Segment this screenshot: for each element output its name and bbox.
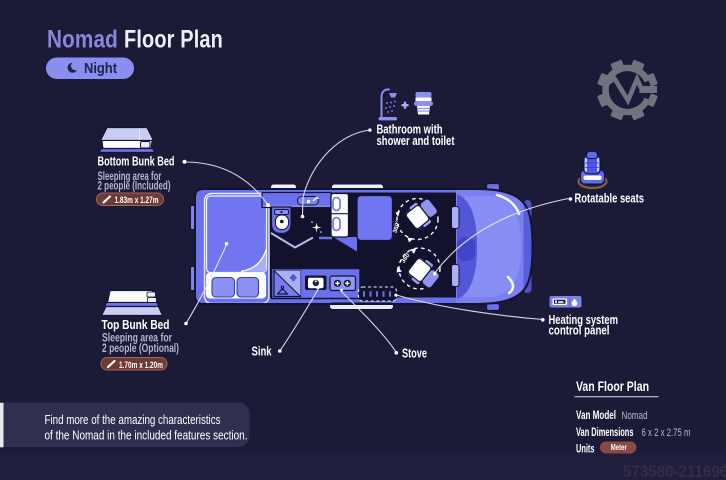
svg-text:shower and toilet: shower and toilet xyxy=(377,133,455,148)
svg-text:Meter: Meter xyxy=(611,443,627,452)
svg-text:Units: Units xyxy=(576,442,595,456)
svg-text:Rotatable seats: Rotatable seats xyxy=(575,191,645,206)
svg-text:Bottom Bunk Bed: Bottom Bunk Bed xyxy=(98,154,175,169)
svg-text:2 people (Optional): 2 people (Optional) xyxy=(102,343,179,355)
svg-text:573580-21169610: 573580-21169610 xyxy=(623,463,726,480)
svg-text:Stove: Stove xyxy=(402,346,427,361)
svg-text:1.70m x 1.20m: 1.70m x 1.20m xyxy=(119,360,163,370)
svg-text:Van Model: Van Model xyxy=(576,408,616,422)
svg-text:Nomad: Nomad xyxy=(47,26,118,54)
svg-text:2 people (Included): 2 people (Included) xyxy=(98,181,171,193)
svg-text:Top Bunk Bed: Top Bunk Bed xyxy=(102,317,170,332)
svg-text:Floor Plan: Floor Plan xyxy=(124,26,223,54)
svg-text:Sink: Sink xyxy=(252,344,273,359)
svg-text:Night: Night xyxy=(84,61,117,77)
svg-text:control panel: control panel xyxy=(549,323,610,338)
svg-text:of the Nomad in the included f: of the Nomad in the included features se… xyxy=(45,429,248,443)
svg-text:Find more of the amazing chara: Find more of the amazing characteristics xyxy=(45,413,221,427)
svg-text:Van Dimensions: Van Dimensions xyxy=(576,425,634,439)
svg-text:Nomad: Nomad xyxy=(622,410,648,422)
svg-text:1.83m x 1.27m: 1.83m x 1.27m xyxy=(115,195,159,205)
svg-text:Van Floor Plan: Van Floor Plan xyxy=(576,378,649,394)
svg-text:6 x 2 x 2.75 m: 6 x 2 x 2.75 m xyxy=(642,427,691,439)
